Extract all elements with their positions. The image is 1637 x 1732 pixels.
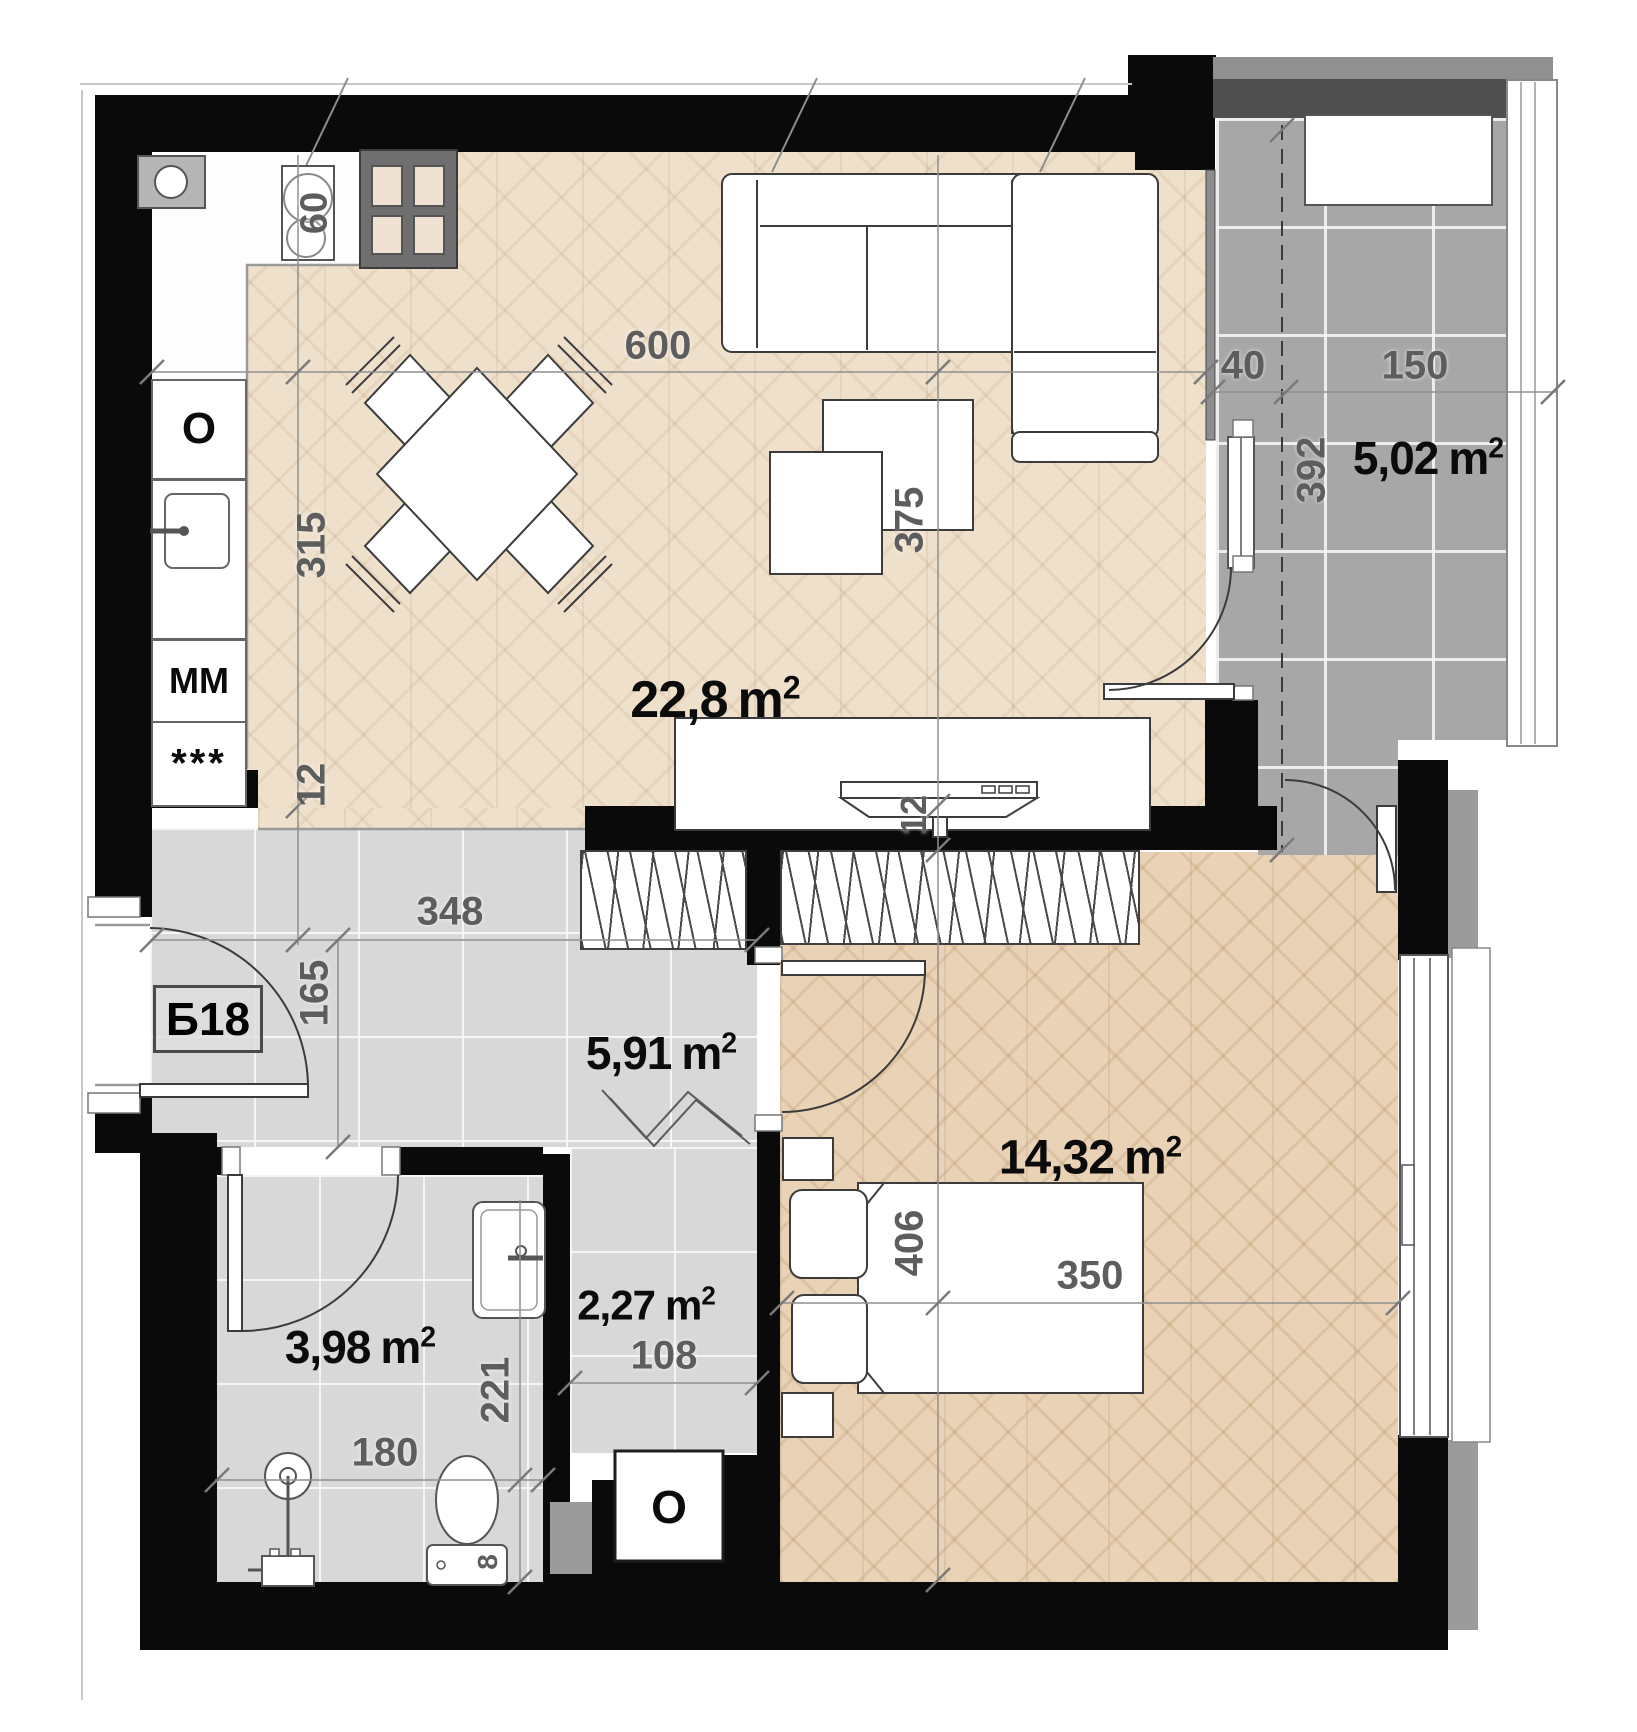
balcony-door-leaf: [1104, 684, 1234, 699]
bath-door-leaf: [228, 1175, 242, 1331]
dim-600: 600: [625, 324, 692, 369]
pillow-icon: [790, 1190, 867, 1278]
balcony-area-label: 5,02m2: [1353, 431, 1503, 485]
dim-12-kitchen: 12: [290, 763, 335, 808]
hall-area-label: 5,91m2: [586, 1026, 736, 1080]
bath-area-label: 3,98m2: [285, 1320, 435, 1374]
dim-108: 108: [631, 1334, 698, 1379]
dim-350: 350: [1057, 1254, 1124, 1299]
duct-label: O: [651, 1480, 687, 1534]
bedroom-area-label: 14,32m2: [999, 1131, 1181, 1186]
plan-linework: [0, 0, 1637, 1732]
entry-door-leaf: [140, 1084, 308, 1097]
freezer-label: ***: [171, 742, 227, 787]
dim-406: 406: [888, 1210, 933, 1277]
dim-12-tv: 12: [893, 795, 935, 835]
balcony-unit-box: [1305, 115, 1492, 205]
balcony-glazing: [1507, 80, 1557, 746]
living-area-label: 22,8m2: [630, 670, 799, 730]
dim-315: 315: [290, 512, 335, 579]
dim-375: 375: [888, 487, 933, 554]
balcony-door-arc: [1109, 567, 1231, 690]
coffee-tables: [770, 400, 973, 574]
pillow-icon: [792, 1295, 867, 1383]
dim-348: 348: [417, 890, 484, 935]
window-handle-icon: [1402, 1165, 1414, 1245]
toilet-icon: [436, 1456, 498, 1544]
bedroom-door-leaf: [782, 961, 925, 975]
bedroom-door-arc: [782, 969, 925, 1112]
apartment-code-badge: Б18: [153, 985, 263, 1053]
washer-label: MM: [169, 660, 229, 702]
windows: [1228, 80, 1557, 1442]
dim-180: 180: [352, 1431, 419, 1476]
oven-label: O: [182, 404, 216, 454]
dim-8: 8: [472, 1554, 504, 1570]
dim-221: 221: [474, 1357, 519, 1424]
dim-150: 150: [1382, 344, 1449, 389]
corridor-area-label: 2,27m2: [577, 1281, 715, 1330]
nightstand-icon: [783, 1138, 833, 1180]
dim-40: 40: [1221, 344, 1266, 389]
bedroom-window-sill: [1452, 948, 1490, 1442]
bath-door-arc: [242, 1175, 398, 1331]
balcony-partition-wall: [1206, 170, 1215, 440]
dim-392: 392: [1290, 437, 1335, 504]
floor-break-symbol: [602, 1090, 750, 1146]
dim-60: 60: [294, 192, 337, 234]
dining-set: [346, 337, 612, 612]
nightstand-icon: [782, 1393, 833, 1437]
dim-165: 165: [293, 960, 338, 1027]
floor-plan: 22,8m2 5,02m2 5,91m2 14,32m2 3,98m2 2,27…: [0, 0, 1637, 1732]
